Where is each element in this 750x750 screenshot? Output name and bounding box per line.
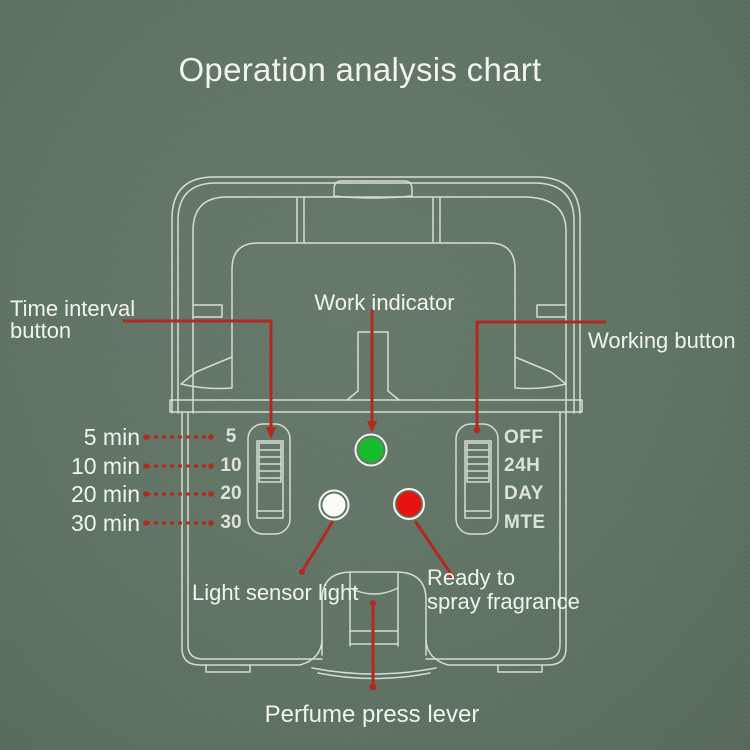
time-interval-callout: [123, 321, 271, 429]
left-foot: [206, 665, 250, 672]
page-title: Operation analysis chart: [170, 51, 550, 89]
spray-ready-light: [397, 492, 422, 517]
right-side-tab: [537, 305, 566, 317]
time-option-30min-label: 30 min: [0, 510, 140, 536]
light-sensor-callout: [303, 521, 333, 570]
time-option-10min-label: 10 min: [0, 453, 140, 479]
time-marks-leaders: [146, 437, 211, 523]
time-mark-20: 20: [218, 481, 244, 507]
time-mark-5: 5: [218, 424, 244, 450]
working-button-label: Working button: [588, 329, 736, 353]
right-foot: [498, 665, 542, 672]
left-side-tab: [193, 305, 222, 317]
mode-off-label: OFF: [504, 425, 574, 451]
working-mode-slider: [456, 424, 498, 534]
time-interval-button-label: Time interval button: [10, 298, 135, 342]
mode-24h-label: 24H: [504, 453, 574, 479]
mode-mte-label: MTE: [504, 510, 574, 536]
device-illustration: [0, 0, 750, 750]
time-interval-slider: [248, 424, 290, 534]
time-option-20min-label: 20 min: [0, 481, 140, 507]
work-indicator-light: [359, 438, 384, 463]
work-indicator-label: Work indicator: [302, 291, 467, 315]
time-mark-10: 10: [218, 453, 244, 479]
mode-day-label: DAY: [504, 481, 574, 507]
operation-analysis-diagram: Operation analysis chart Time interval b…: [0, 0, 750, 750]
light-sensor-label: Light sensor light: [192, 581, 358, 605]
light-sensor-light: [323, 494, 346, 517]
indicator-lights: [320, 435, 425, 520]
ready-to-spray-label: Ready to spray fragrance: [427, 566, 580, 614]
time-option-5min-label: 5 min: [0, 424, 140, 450]
time-mark-30: 30: [218, 510, 244, 536]
perfume-press-lever-label: Perfume press lever: [262, 703, 482, 727]
